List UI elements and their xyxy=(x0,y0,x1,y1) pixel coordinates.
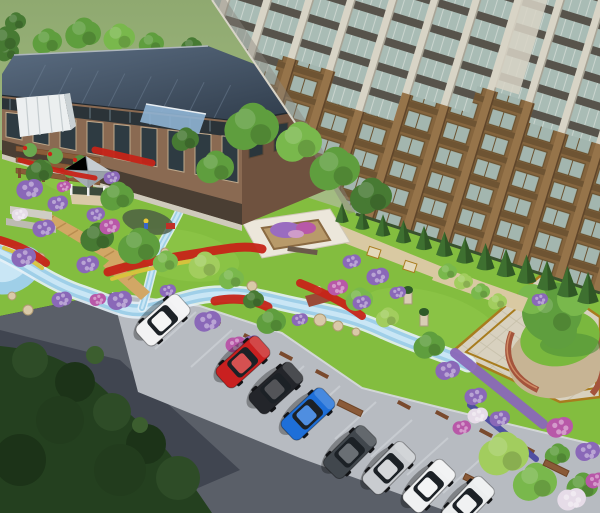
play-equipment xyxy=(166,223,175,229)
person xyxy=(144,219,149,224)
white-tent xyxy=(16,93,76,137)
landscape-rendering xyxy=(0,0,600,513)
